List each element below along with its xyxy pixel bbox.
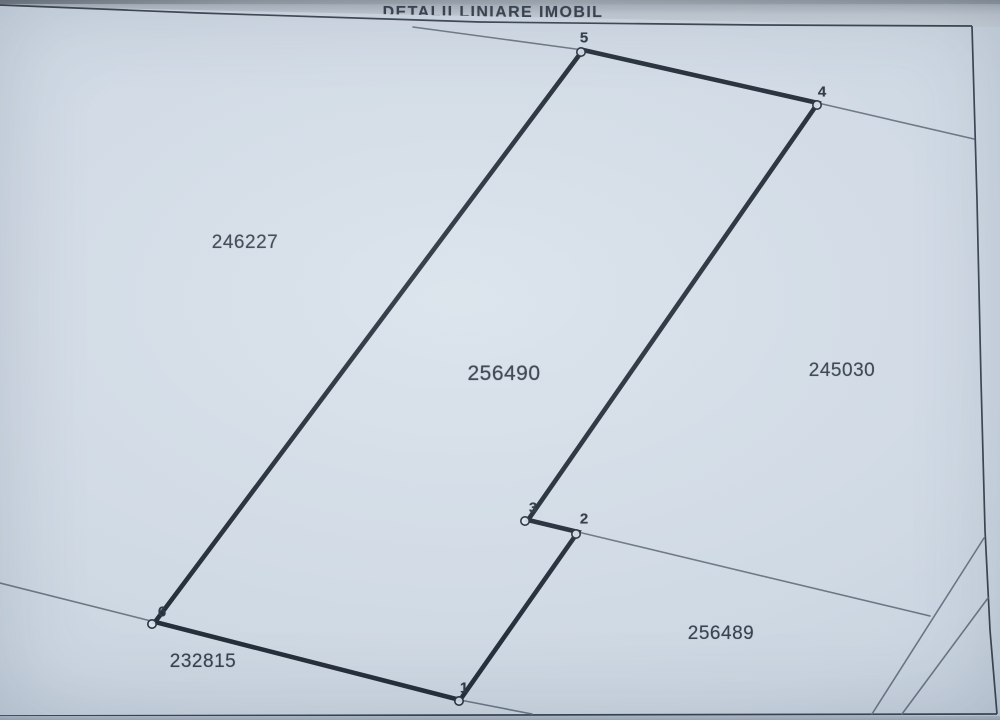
boundary-to-vertex-5: [413, 27, 583, 50]
parcel-label-245030: 245030: [809, 360, 875, 382]
vertex-label-5: 5: [580, 30, 588, 47]
frame-right: [972, 26, 997, 714]
vertex-label-3: 3: [529, 500, 537, 517]
vertex-marker-1: [455, 697, 463, 705]
vertex-label-4: 4: [818, 84, 826, 101]
boundary-from-vertex-4: [818, 103, 974, 139]
vertex-marker-4: [813, 101, 821, 109]
vertex-marker-5: [577, 48, 585, 56]
boundary-diagonal-b: [902, 598, 988, 714]
frame-top: [0, 5, 972, 26]
vertex-label-2: 2: [580, 511, 588, 528]
vertex-marker-6: [148, 620, 156, 628]
boundary-from-vertex-6: [0, 583, 155, 622]
parcel-label-256490: 256490: [467, 362, 540, 386]
vertex-label-1: 1: [460, 680, 468, 697]
boundary-from-vertex-2: [578, 532, 930, 616]
parcel-label-256489: 256489: [688, 623, 754, 645]
vertex-marker-3: [521, 517, 529, 525]
sheet-bottom-edge: [0, 716, 1000, 720]
parcel-label-232815: 232815: [170, 651, 236, 673]
vertex-marker-2: [572, 530, 580, 538]
cadastral-map-photo: DETALII LINIARE IMOBIL 246227 256490 245…: [0, 0, 1000, 720]
parcel-label-246227: 246227: [212, 232, 278, 254]
boundary-from-vertex-1: [460, 700, 532, 714]
vertex-label-6: 6: [158, 604, 166, 621]
